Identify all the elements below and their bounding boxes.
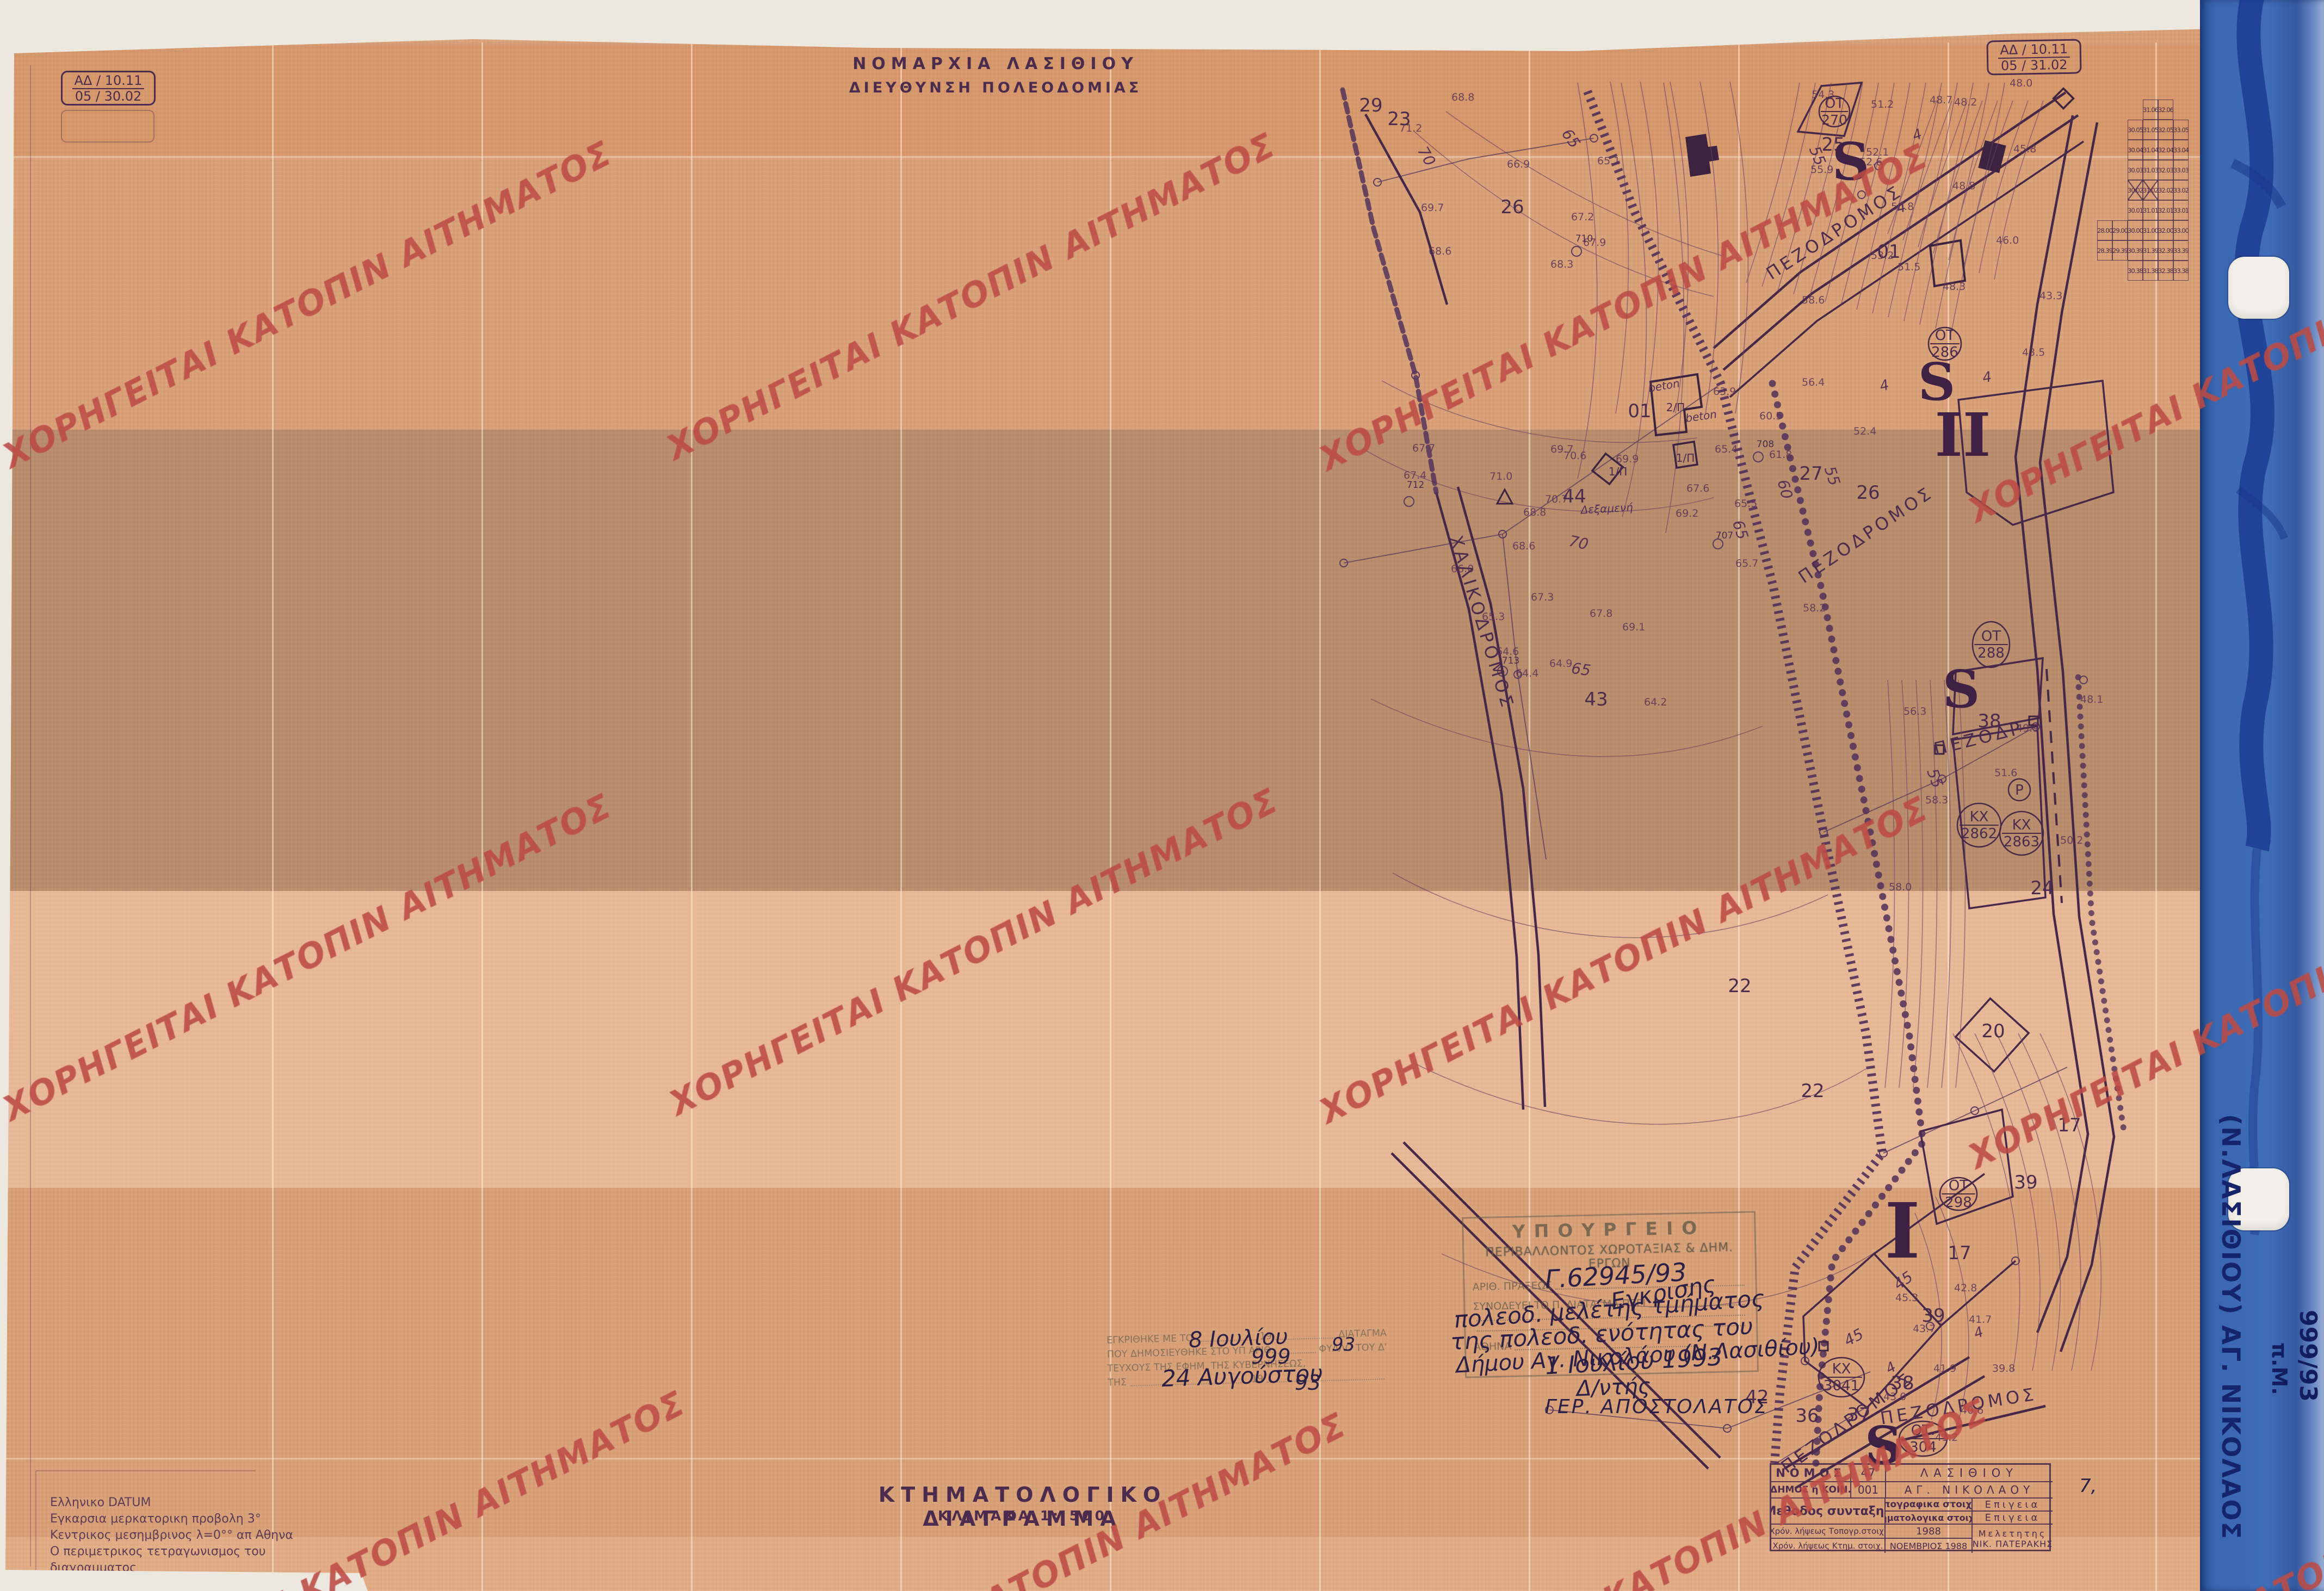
sheet-index-cell: 31.01 [2143,200,2158,220]
block-circle-label: ΚΧ [2012,817,2031,833]
map-label: ΠΕΖΟΔΡΟΜΟΣ [1763,181,1907,284]
spot-elevation: 67.6 [1686,482,1709,494]
map-label: 713 [1502,655,1519,666]
spot-elevation: 63.9 [1713,386,1736,398]
spot-elevation: 61.8 [1769,449,1792,461]
map-label: 1/Π [1609,465,1628,478]
block-circle-label: ΟΤ [1935,327,1955,344]
sheet-index-cell: 32.04 [2158,140,2173,160]
spot-elevation: 65.4 [1715,443,1738,455]
topo-value: Επιγεια [1973,1499,2053,1512]
nomos-value: ΛΑΣΙΘΙΟΥ [1886,1465,2053,1482]
map-label: 2/Π [1666,401,1685,414]
map-label: 43 [1584,689,1608,710]
sheet-index-row: 31.0632.06 [2143,100,2173,120]
map-label: 55 [1923,766,1946,790]
dimos-label: ΔΗΜΟΣ ή ΚΟΙΝ. [1771,1482,1851,1499]
block-circle-number: 298 [1945,1194,1972,1211]
sheet-index-cell: 32.03 [2158,160,2173,180]
block-circle-number: 3041 [1824,1378,1859,1394]
spot-elevation: 42.8 [1954,1282,1977,1294]
sheet-index-cell: 30.03 [2128,160,2143,180]
spot-elevation: 51.2 [1871,98,1894,110]
spot-elevation: 51.6 [1994,767,2017,779]
nomos-label: ΝΟΜΟΣ [1771,1465,1851,1482]
sheet-index-row: 30.0131.0132.0133.01 [2128,200,2189,220]
sheet-index-cell: 32.02 [2158,180,2173,200]
spot-elevation: 45.8 [2013,143,2036,155]
spine-code-label: π.Μ. [2267,1342,2291,1395]
spot-elevation: 68.6 [1429,245,1451,257]
spot-elevation: 65.1 [1597,155,1620,167]
map-label: 22 [1728,975,1751,997]
datum-note: Ελληνικο DATUMΕγκαρσια μερκατορικη προβο… [50,1495,333,1591]
spot-elevation: 64.9 [1549,658,1572,670]
map-label: 4 [1910,126,1924,145]
datum-note-line: ειναι της προβολης HATT του κεντρου φυλλ… [50,1576,333,1591]
block-circle-label: ΟΤ. [1911,1422,1936,1439]
sheet-index-cell: 30.01 [2128,200,2143,220]
spot-elevation: 48.7 [1930,94,1952,106]
sheet-index-cell: 30.39 [2128,240,2143,261]
hw-note: 7, [2079,1475,2097,1497]
map-label: 29 [1359,95,1382,116]
block-circle-label: ΚΧ [1832,1361,1851,1377]
map-label: II [1935,400,1991,470]
map-label: 65 [1558,125,1584,151]
sheet-index-cell: 33.01 [2173,200,2189,220]
stamp-title: ΥΠΟΥΡΓΕΙΟ [1471,1216,1747,1243]
building-filled [1685,134,1719,177]
map-label: 01 [1628,400,1651,422]
parcel-boundaries [1730,83,2113,1408]
spot-elevation: 58.3 [1925,794,1948,806]
sheet-code-line1: ΑΔ / 10.11 [72,73,144,89]
map-label: 39 [1921,1305,1945,1327]
sheet-index-cell: 33.05 [2173,120,2189,140]
spine-region-label: (Ν.ΛΑΣΙΘΙΟΥ) ΑΓ. ΝΙΚΟΛΑΟΣ [2216,1114,2246,1540]
approval-l4a: ΤΗΣ [1108,1377,1127,1389]
sheet-code-box-ghost [61,110,154,143]
block-circle-label: ΟΤ [1981,628,2001,645]
spot-elevation: 68.3 [1550,258,1573,270]
map-label: 1/Π [1676,451,1695,465]
sheet-index-cell: 32.39 [2158,240,2173,261]
sheet-index-cell: 29.39 [2112,240,2128,261]
date-ktima-value: ΝΟΕΜΒΡΙΟΣ 1988 [1886,1539,1973,1553]
sheet-index-cell: 31.06 [2143,100,2158,120]
sheet-index-cell: 31.03 [2143,160,2158,180]
map-label: 24 [2030,877,2054,899]
spot-elevation: 69.1 [1622,621,1645,633]
spot-elevation: 67.3 [1531,591,1554,603]
sheet-index-cell: 30.00 [2128,220,2143,240]
spot-elevation: 56.4 [1802,376,1825,388]
spot-elevation: 64.4 [1516,667,1538,679]
map-label: 23 [1387,108,1411,130]
spot-elevation: 65.7 [1735,558,1758,569]
spot-elevation: 46.0 [1996,234,2019,246]
map-label: 17 [1948,1242,1971,1264]
nomos-code: 47 [1851,1465,1886,1482]
researcher-label: Μελετητης [1979,1528,2047,1539]
map-label: 70 [1414,144,1439,169]
spot-elevation: 69.7 [1421,202,1444,214]
sheet-index-cell: 33.04 [2173,140,2189,160]
spot-elevation: 69.2 [1676,507,1698,519]
date-topo-value: 1988 [1886,1525,1973,1539]
map-label: 710 [1575,233,1593,244]
method-label: Μεθοδος συνταξης [1771,1499,1886,1525]
ktima-label: Κτηματολογικα στοιχεια [1886,1512,1973,1525]
prefecture-title: ΝΟΜΑΡΧΙΑ ΛΑΣΙΘΙΟΥ [832,54,1159,73]
spot-elevation: 51.5 [1897,261,1920,273]
sheet-code-line2: 05 / 31.02 [1988,58,2080,73]
sheet-index-row: 30.3831.3832.3833.38 [2128,261,2189,281]
map-label: 17 [2057,1115,2081,1136]
sheet-index-row: 30.0231.0232.0233.02 [2128,180,2189,200]
spot-elevation: 48.2 [1954,96,1977,108]
spot-elevation: 39.8 [1992,1363,2015,1375]
map-label: 4 [1971,1324,1986,1342]
map-label: 45 [1841,1325,1866,1350]
sheet-index-cell: 31.38 [2143,261,2158,281]
map-label: beton [1685,407,1718,425]
spot-elevation: 66.9 [1507,158,1530,170]
map-sheet-paper: ΟΤ270ΟΤ286ΟΤ288ΟΤ298ΟΤ.304ΚΧ3041ΚΧ2862ΚΧ… [0,0,2324,1591]
sheet-index-cell: 33.00 [2173,220,2189,240]
sheet-index-cell: 28.00 [2097,220,2112,240]
trig-point-icon [1497,490,1512,504]
spot-elevation: 68.8 [1523,506,1546,518]
map-label: 01 [1877,241,1900,263]
sheet-index-cell: 31.02 [2143,180,2158,200]
spot-elevation: 58.6 [1802,294,1825,306]
spot-elevation: 54.3 [1812,89,1834,101]
spot-elevation: 67.7 [1412,442,1435,454]
ktima-value: Επιγεια [1973,1512,2053,1525]
parking-symbol: P [2015,782,2024,798]
sheet-index-cell: 28.39 [2097,240,2112,261]
map-label: 708 [1757,439,1774,450]
researcher-value: ΝΙΚ. ΠΑΤΕΡΑΚΗΣ [1973,1539,2053,1549]
map-label: 707 [1716,530,1733,541]
spot-elevation: 48.3 [1943,281,1965,293]
sheet-code-box-left: ΑΔ / 10.11 05 / 30.02 [61,71,156,106]
spot-elevation: 45.3 [1895,1292,1918,1304]
punch-hole [2228,257,2289,319]
map-label: 65 [1570,659,1592,680]
sheet-index-row: 30.0531.0532.0533.05 [2128,120,2189,140]
spot-elevation: 48.8 [1952,180,1975,192]
spot-elevation: 68.6 [1512,540,1535,552]
sheet-index-row: 28.3929.3930.3931.3932.3933.39 [2097,240,2189,261]
sheet-index-cell: 33.38 [2173,261,2189,281]
title-block-table: ΝΟΜΟΣ 47 ΛΑΣΙΘΙΟΥ ΔΗΜΟΣ ή ΚΟΙΝ. 001 ΑΓ. … [1770,1463,2051,1551]
sheet-index-cell: 32.00 [2158,220,2173,240]
map-label: 4 [1981,369,1993,386]
spot-elevation: 43.5 [2022,346,2045,358]
sheet-index-cell: 32.01 [2158,200,2173,220]
date-ktima-label: Χρόν. λήψεως Κτημ. στοιχ. [1771,1539,1886,1553]
spot-elevation: 48.1 [2080,694,2103,705]
hw-gazette-year: 93 [1295,1371,1321,1395]
spot-elevation: 60.5 [1759,410,1782,422]
map-label: beton [1647,376,1680,395]
approval-l1a: ΕΓΚΡΙΘΗΚΕ ΜΕ ΤΟ [1107,1333,1194,1346]
spot-elevation: 67.8 [1590,608,1612,620]
stamp-praxis-label: ΑΡΙΘ. ΠΡΑΞΕΩΣ [1472,1279,1552,1293]
spot-elevation: 50.2 [2060,834,2083,846]
datum-note-line: Ο περιμετρικος τετραγωνισμος του διαγραμ… [50,1544,333,1576]
datum-note-line: Εγκαρσια μερκατορικη προβολη 3° [50,1511,333,1527]
topo-label: Τοπογραφικα στοιχεια [1886,1499,1973,1512]
spot-elevation: 69.9 [1616,453,1639,465]
datum-note-line: Κεντρικος μεσημβρινος λ=0°° απ Αθηνα [50,1527,333,1544]
sheet-index-cell: 29.00 [2112,220,2128,240]
sheet-index-cell: 30.02 [2128,180,2143,200]
spot-elevation: 67.2 [1571,211,1594,223]
block-circle-number: 270 [1821,112,1847,128]
sheet-index-cell: 33.02 [2173,180,2189,200]
map-label: 39 [2014,1172,2037,1193]
spot-elevation: 52.4 [1853,425,1876,437]
sheet-frame-lines [30,65,256,1588]
sheet-index-cell: 32.06 [2158,100,2173,120]
block-circle-label: ΟΤ [1949,1178,1968,1194]
sheet-code-line1: ΑΔ / 10.11 [1998,41,2070,59]
map-label: 712 [1407,480,1424,491]
spine-number-label: 999/93 [2294,1310,2322,1402]
sheet-code-box-right: ΑΔ / 10.11 05 / 31.02 [1986,39,2081,75]
dimos-code: 001 [1851,1482,1886,1499]
block-circle-number: 2862 [1961,826,1997,842]
map-label: S [1832,132,1870,192]
block-circle-number: 304 [1909,1439,1937,1456]
spot-elevation: 43.3 [2039,290,2062,302]
sheet-code-line2: 05 / 30.02 [63,89,154,103]
spot-elevation: 48.0 [2010,77,2032,89]
map-label: 20 [1981,1020,2005,1042]
spot-elevation: 58.0 [1889,881,1912,893]
spot-elevation: 65.5 [1734,498,1757,510]
hw-decree-year: 93 [1332,1334,1355,1355]
sheet-index-cell: 30.04 [2128,140,2143,160]
spot-elevation: 58.2 [1803,602,1826,614]
spot-elevation: 41.2 [1935,1432,1958,1444]
spot-elevation: 71.0 [1489,471,1512,482]
sheet-index-cell: 31.39 [2143,240,2158,261]
directorate-title: ΔΙΕΥΘΥΝΣΗ ΠΟΛΕΟΔΟΜΙΑΣ [832,79,1159,96]
sheet-index-cell: 30.38 [2128,261,2143,281]
sheet-index-cell: 31.05 [2143,120,2158,140]
map-label: 70 [1567,532,1590,554]
map-label: Δεξαμενή [1579,500,1634,516]
map-label: 4 [1878,377,1891,395]
spot-elevation: 68.8 [1451,91,1474,103]
sheet-index-cell: 32.38 [2158,261,2173,281]
sheet-index-cell: 33.03 [2173,160,2189,180]
hw-signature: ΓΕΡ. ΑΠΟΣΤΟΛΑΤΟΣ [1545,1396,1769,1418]
map-label: 22 [1801,1080,1824,1102]
scanned-cadastral-map: ΟΤ270ΟΤ286ΟΤ288ΟΤ298ΟΤ.304ΚΧ3041ΚΧ2862ΚΧ… [0,0,2324,1591]
dashed-boundary [2047,669,2062,903]
map-label: I [1884,1187,1920,1276]
sheet-index-row: 30.0431.0432.0433.04 [2128,140,2189,160]
sheet-index-cell: 31.04 [2143,140,2158,160]
block-circle-number: 288 [1977,645,2005,661]
map-scale: ΚΛΙΜΑΚΑ 1: 500 [854,1508,1191,1524]
sheet-index-row: 28.0029.0030.0031.0032.0033.00 [2097,220,2189,240]
spot-elevation: 70.6 [1563,450,1586,462]
map-label: 26 [1856,482,1880,504]
spot-elevation: 41.7 [1969,1314,1992,1326]
datum-note-line: Ελληνικο DATUM [50,1495,333,1511]
map-label: 27 [1799,463,1822,485]
sheet-index-cell: 30.05 [2128,120,2143,140]
map-label: 55 [1821,464,1844,488]
map-label: S [1943,659,1980,720]
spot-elevation: 64.2 [1644,696,1667,708]
sheet-index-cell: 32.05 [2158,120,2173,140]
spot-elevation: 56.3 [1903,705,1926,717]
block-circle-label: ΚΧ [1970,809,1989,825]
block-circle-number: 2863 [2004,834,2039,850]
map-label: 26 [1500,196,1524,218]
date-topo-label: Χρόν. λήψεως Τοπογρ.στοιχ. [1771,1525,1886,1539]
map-label: 36 [1795,1405,1819,1427]
sheet-index-cell: 33.39 [2173,240,2189,261]
dimos-value: ΑΓ. ΝΙΚΟΛΑΟΥ [1886,1482,2053,1499]
sheet-index-row: 30.0331.0332.0333.03 [2128,160,2189,180]
spot-elevation: 41.9 [1933,1363,1956,1375]
sheet-index-cell: 31.00 [2143,220,2158,240]
